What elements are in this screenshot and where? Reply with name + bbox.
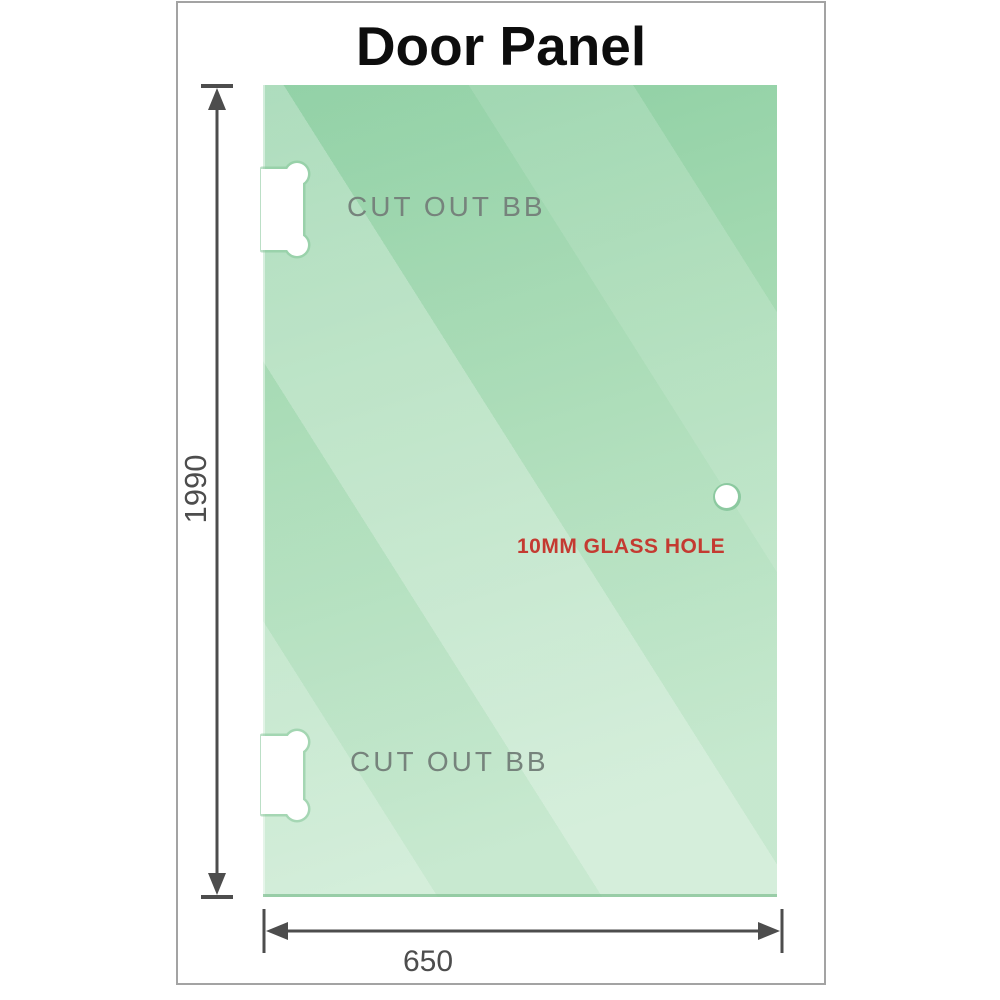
width-dim-arrow-right-icon [758,922,780,940]
glass-hole-label: 10MM GLASS HOLE [517,535,725,559]
glass-hole [713,483,741,511]
width-dimension-label: 650 [403,945,453,979]
top-cutout-shape [261,163,308,256]
door-panel-drawing [0,0,1000,1000]
height-dim-arrow-up-icon [208,88,226,110]
cutout-label-bottom: CUT OUT BB [350,746,549,778]
cutout-label-top: CUT OUT BB [347,191,546,223]
width-dimension [264,909,782,953]
glass-bottom-edge [263,894,777,897]
bottom-cutout-shape [261,731,308,820]
diagram-canvas: Door Panel CUT OUT BB CUT OUT BB 10MM GL… [0,0,1000,1000]
height-dim-arrow-down-icon [208,873,226,895]
bottom-cutout [260,729,311,823]
width-dim-arrow-left-icon [266,922,288,940]
top-cutout [260,161,311,259]
glass-hole-circle [715,485,738,508]
page-title: Door Panel [356,14,646,78]
height-dimension-label: 1990 [178,455,214,524]
